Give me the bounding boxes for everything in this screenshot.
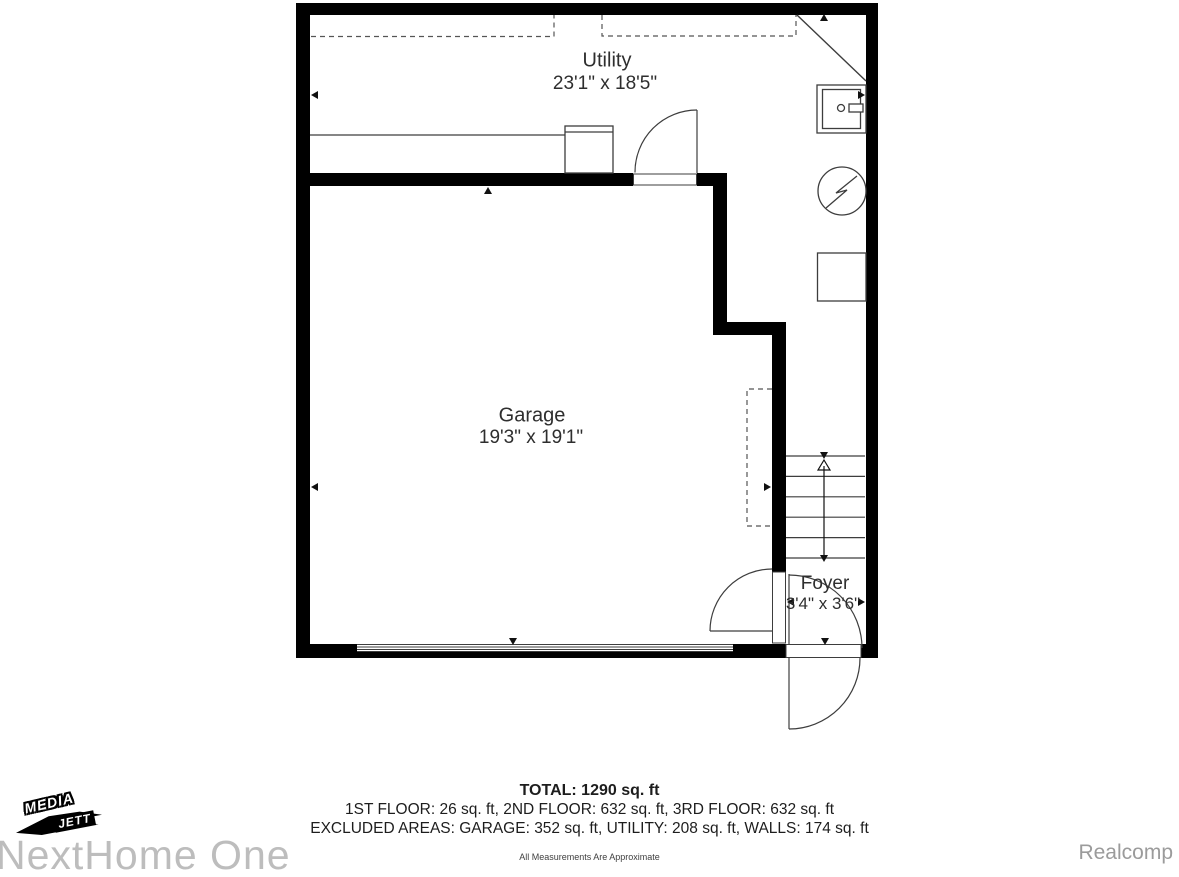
garage-stair-wall: [772, 322, 786, 572]
floor-plan-page: Utility 23'1" x 18'5" Garage 19'3" x 19'…: [0, 0, 1179, 877]
door-swings: [635, 110, 862, 729]
floor-plan-drawing: [0, 0, 1179, 877]
nexthome-watermark: NextHome One: [0, 832, 291, 877]
utility-door-threshold: [634, 174, 697, 185]
utility-overhead-storage-right: [602, 15, 796, 36]
marker-foyer-bottom: [821, 638, 829, 645]
washer-icon: [565, 126, 613, 173]
garage-overhead-feature: [747, 389, 772, 526]
utility-door: [635, 110, 697, 173]
garage-east-wall-upper: [713, 173, 727, 335]
marker-garage-bottom: [509, 638, 517, 645]
floor-areas-text: 1ST FLOOR: 26 sq. ft, 2ND FLOOR: 632 sq.…: [0, 801, 1179, 820]
bottom-wall-left: [296, 644, 357, 658]
foyer-room-label: Foyer: [801, 573, 850, 595]
logo-jett-text: JETT: [53, 810, 96, 833]
bottom-wall-mid: [733, 644, 786, 658]
left-wall: [296, 3, 310, 658]
bottom-wall-right-corner: [861, 644, 878, 658]
marker-utility-left: [311, 91, 318, 99]
stairs: [786, 456, 865, 558]
garage-room-dims: 19'3" x 19'1": [479, 427, 583, 449]
right-wall: [866, 3, 878, 658]
foyer-room-dims: 3'4" x 3'6": [786, 594, 860, 614]
utility-box-fixture: [818, 253, 867, 301]
utility-room-label: Utility: [583, 50, 632, 73]
outer-walls: [296, 3, 878, 658]
total-area-text: TOTAL: 1290 sq. ft: [0, 781, 1179, 801]
realcomp-credit: Realcomp: [1078, 841, 1173, 865]
top-wall: [296, 3, 878, 15]
interior-walls: [296, 173, 786, 572]
marker-corridor-top: [820, 14, 828, 21]
garage-door: [357, 644, 733, 652]
electrical-panel-icon: [818, 167, 866, 215]
marker-garage-top: [484, 187, 492, 194]
storm-door: [789, 658, 860, 729]
marker-garage-left: [311, 483, 318, 491]
utility-overhead-storage-left: [311, 15, 554, 37]
garage-foyer-door: [710, 569, 772, 631]
foyer-door-threshold: [773, 572, 786, 643]
bottom-wall-under-garage-door: [357, 651, 733, 658]
garage-room-label: Garage: [499, 405, 566, 428]
logo-media-text: MEDIA: [23, 790, 75, 817]
corner-diagonal-line: [797, 15, 866, 81]
stairs-direction-arrow: [818, 452, 830, 562]
marker-garage-right: [764, 483, 771, 491]
entry-door-threshold: [786, 645, 861, 658]
garage-utility-wall-left: [296, 173, 633, 186]
utility-room-dims: 23'1" x 18'5": [553, 73, 657, 95]
